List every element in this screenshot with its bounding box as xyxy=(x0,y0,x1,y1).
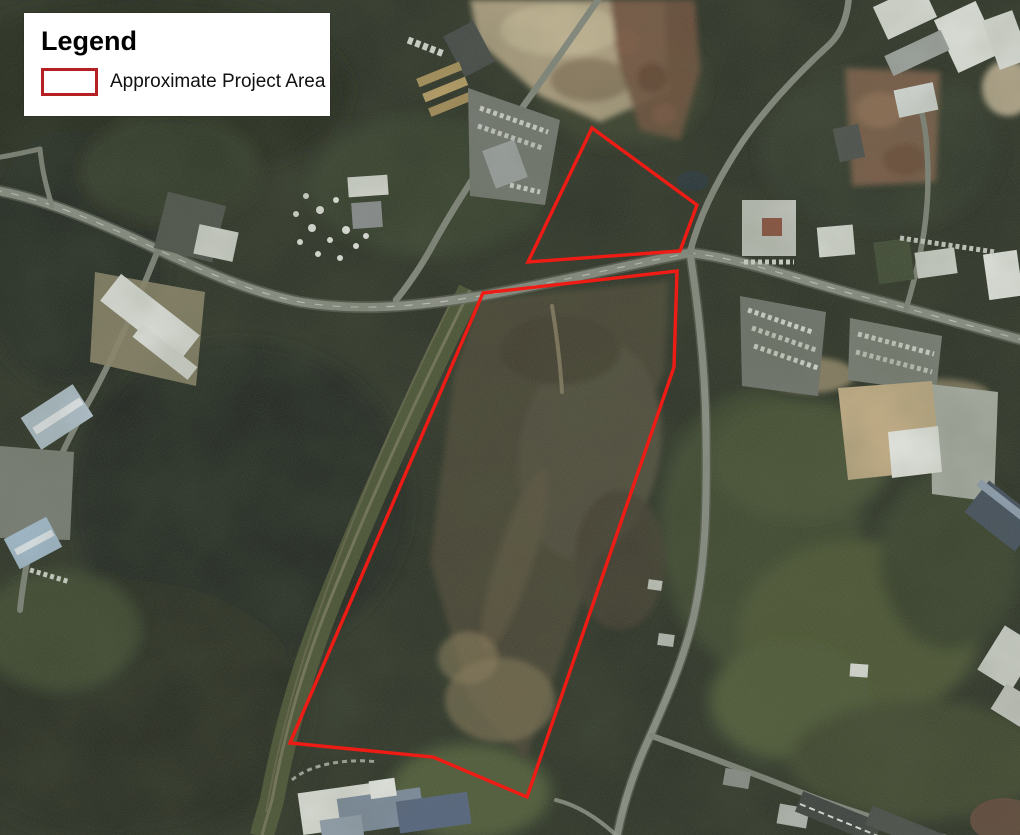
project-area-swatch xyxy=(41,68,98,96)
legend-title: Legend xyxy=(41,27,330,55)
satellite-map xyxy=(0,0,1020,835)
imagery-mottle-texture xyxy=(0,0,1020,835)
legend-panel: Legend Approximate Project Area xyxy=(24,13,330,116)
map-canvas: Legend Approximate Project Area xyxy=(0,0,1020,835)
legend-item: Approximate Project Area xyxy=(41,68,330,96)
legend-item-label: Approximate Project Area xyxy=(110,71,325,93)
